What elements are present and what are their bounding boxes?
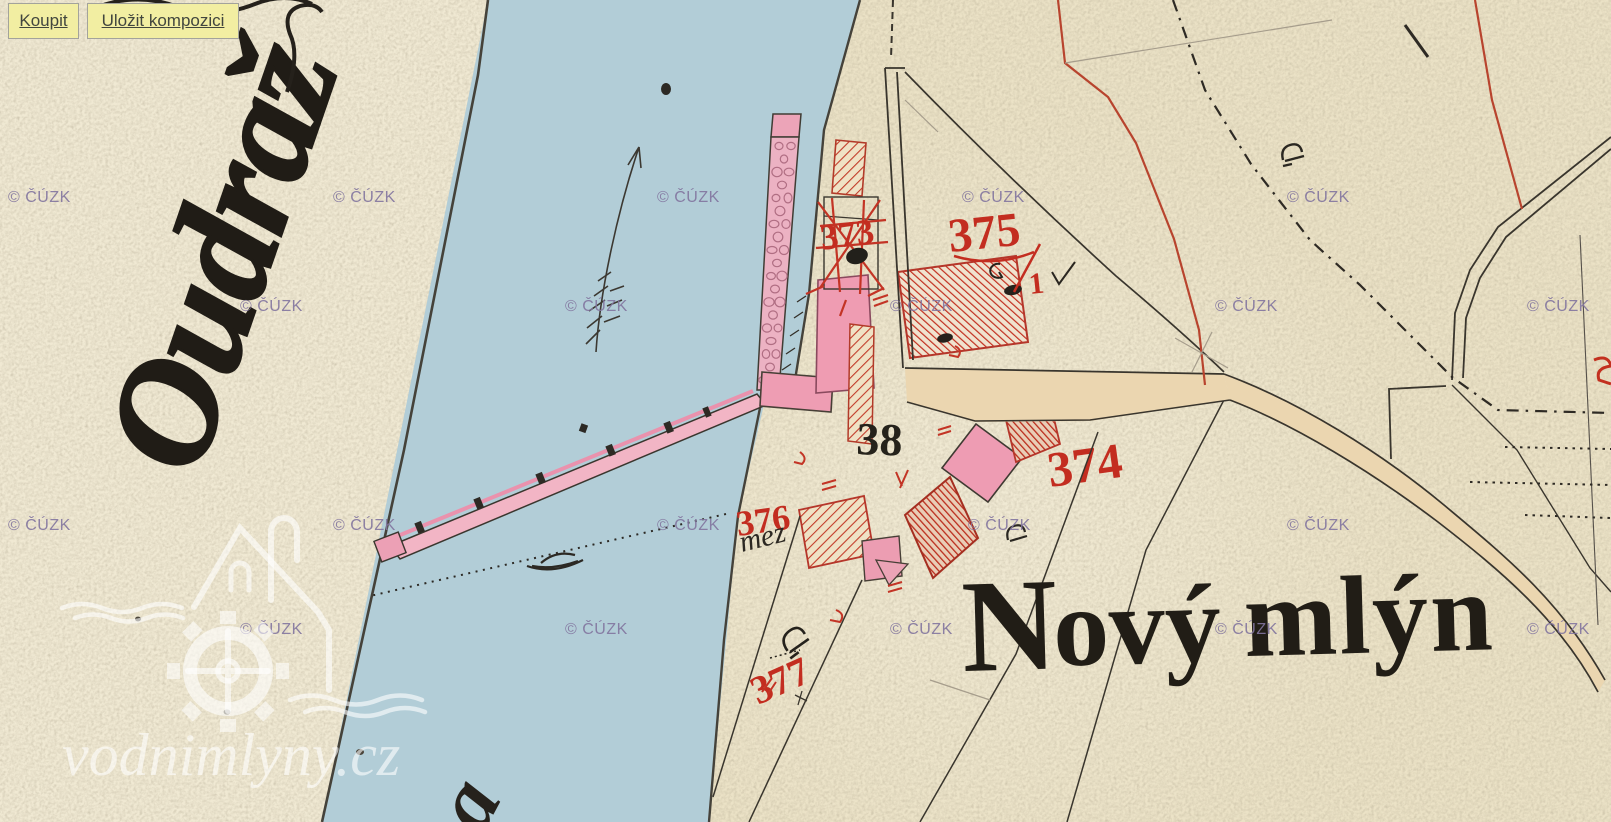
svg-text:© ČÚZK: © ČÚZK xyxy=(1287,187,1350,206)
svg-text:© ČÚZK: © ČÚZK xyxy=(8,515,71,534)
svg-text:375: 375 xyxy=(946,203,1023,263)
svg-text:© ČÚZK: © ČÚZK xyxy=(565,296,628,315)
svg-text:© ČÚZK: © ČÚZK xyxy=(1527,296,1590,315)
svg-text:vodnimlyny.cz: vodnimlyny.cz xyxy=(62,722,400,788)
svg-text:© ČÚZK: © ČÚZK xyxy=(1527,619,1590,638)
svg-text:© ČÚZK: © ČÚZK xyxy=(1215,296,1278,315)
svg-text:© ČÚZK: © ČÚZK xyxy=(1215,619,1278,638)
svg-text:© ČÚZK: © ČÚZK xyxy=(968,515,1031,534)
svg-text:© ČÚZK: © ČÚZK xyxy=(890,296,953,315)
svg-text:N: N xyxy=(960,550,1059,700)
svg-text:© ČÚZK: © ČÚZK xyxy=(657,187,720,206)
svg-text:mlýn: mlýn xyxy=(1242,550,1496,681)
svg-text:374: 374 xyxy=(1044,432,1126,498)
svg-text:ový: ový xyxy=(1051,562,1222,691)
svg-text:© ČÚZK: © ČÚZK xyxy=(8,187,71,206)
svg-text:© ČÚZK: © ČÚZK xyxy=(1287,515,1350,534)
svg-text:© ČÚZK: © ČÚZK xyxy=(565,619,628,638)
svg-text:© ČÚZK: © ČÚZK xyxy=(333,515,396,534)
svg-text:© ČÚZK: © ČÚZK xyxy=(657,515,720,534)
svg-text:© ČÚZK: © ČÚZK xyxy=(240,296,303,315)
svg-text:© ČÚZK: © ČÚZK xyxy=(333,187,396,206)
svg-text:© ČÚZK: © ČÚZK xyxy=(890,619,953,638)
svg-text:© ČÚZK: © ČÚZK xyxy=(962,187,1025,206)
svg-text:38: 38 xyxy=(856,413,904,466)
svg-text:373: 373 xyxy=(818,211,877,258)
